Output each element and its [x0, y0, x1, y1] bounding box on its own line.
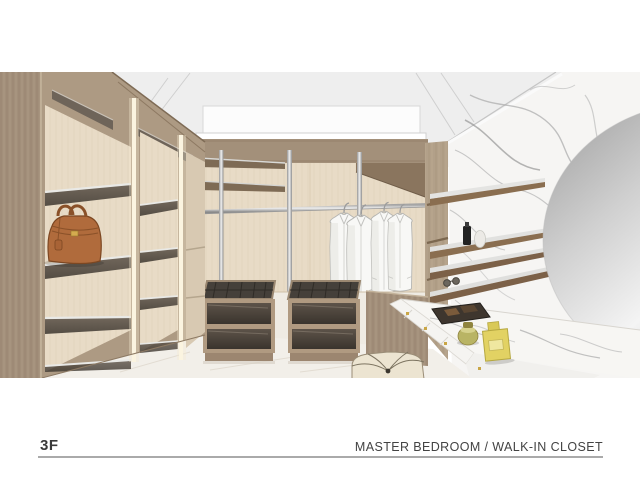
shelf-bay-1 [44, 105, 131, 372]
wood-pillar [0, 72, 42, 378]
presentation-page: 3F MASTER BEDROOM / WALK-IN CLOSET [0, 0, 640, 480]
brass-knob [478, 367, 481, 370]
floor-label: 3F [40, 437, 59, 454]
brass-knob [424, 327, 427, 330]
island-chest-left [203, 281, 275, 364]
page-title: MASTER BEDROOM / WALK-IN CLOSET [355, 440, 603, 454]
led-strip [177, 135, 186, 360]
shelf-bay-3 [186, 152, 205, 348]
ceiling-light-panel [196, 106, 426, 141]
shelf-bay-2 [140, 132, 178, 353]
walk-in-closet-rendering [0, 0, 640, 480]
brass-knob [444, 342, 447, 345]
island-chest-right [288, 281, 360, 364]
led-strip [129, 98, 139, 362]
ottoman [352, 352, 424, 379]
footer-rule [38, 456, 603, 458]
ottoman-button [386, 369, 391, 374]
brass-knob [406, 312, 409, 315]
